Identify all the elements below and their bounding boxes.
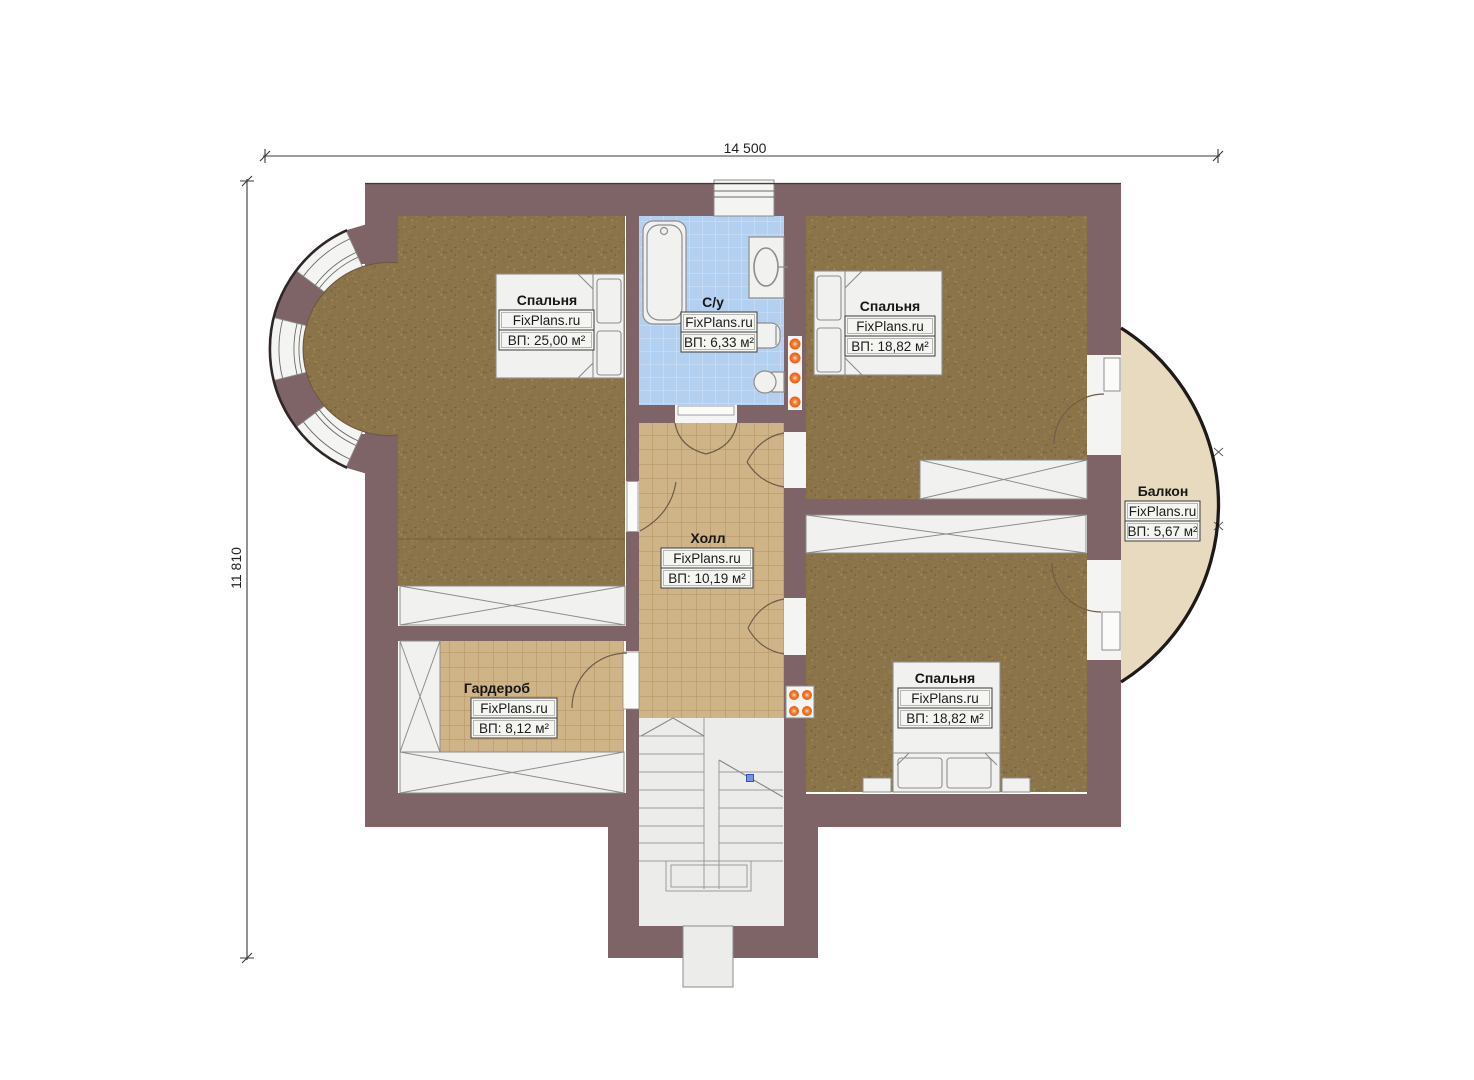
svg-text:FixPlans.ru: FixPlans.ru: [513, 313, 581, 328]
svg-text:14 500: 14 500: [724, 140, 767, 156]
svg-text:Спальня: Спальня: [517, 292, 577, 308]
svg-text:С/у: С/у: [702, 294, 724, 310]
svg-text:Гардероб: Гардероб: [464, 680, 531, 696]
svg-text:FixPlans.ru: FixPlans.ru: [480, 701, 548, 716]
svg-text:FixPlans.ru: FixPlans.ru: [685, 315, 753, 330]
svg-text:ВП: 10,19 м²: ВП: 10,19 м²: [668, 571, 746, 586]
svg-text:ВП: 8,12 м²: ВП: 8,12 м²: [479, 721, 550, 736]
svg-text:FixPlans.ru: FixPlans.ru: [1129, 504, 1197, 519]
svg-text:ВП: 5,67 м²: ВП: 5,67 м²: [1127, 524, 1198, 539]
svg-text:Холл: Холл: [690, 530, 725, 546]
svg-text:ВП: 25,00 м²: ВП: 25,00 м²: [508, 333, 586, 348]
svg-text:FixPlans.ru: FixPlans.ru: [911, 691, 979, 706]
svg-text:FixPlans.ru: FixPlans.ru: [856, 319, 924, 334]
svg-text:ВП: 18,82 м²: ВП: 18,82 м²: [906, 711, 984, 726]
svg-text:11 810: 11 810: [228, 547, 244, 589]
svg-text:Спальня: Спальня: [915, 670, 975, 686]
svg-text:ВП: 6,33 м²: ВП: 6,33 м²: [684, 335, 755, 350]
svg-text:Спальня: Спальня: [860, 298, 920, 314]
svg-text:Балкон: Балкон: [1138, 483, 1189, 499]
svg-text:FixPlans.ru: FixPlans.ru: [673, 551, 741, 566]
svg-text:ВП: 18,82 м²: ВП: 18,82 м²: [851, 339, 929, 354]
